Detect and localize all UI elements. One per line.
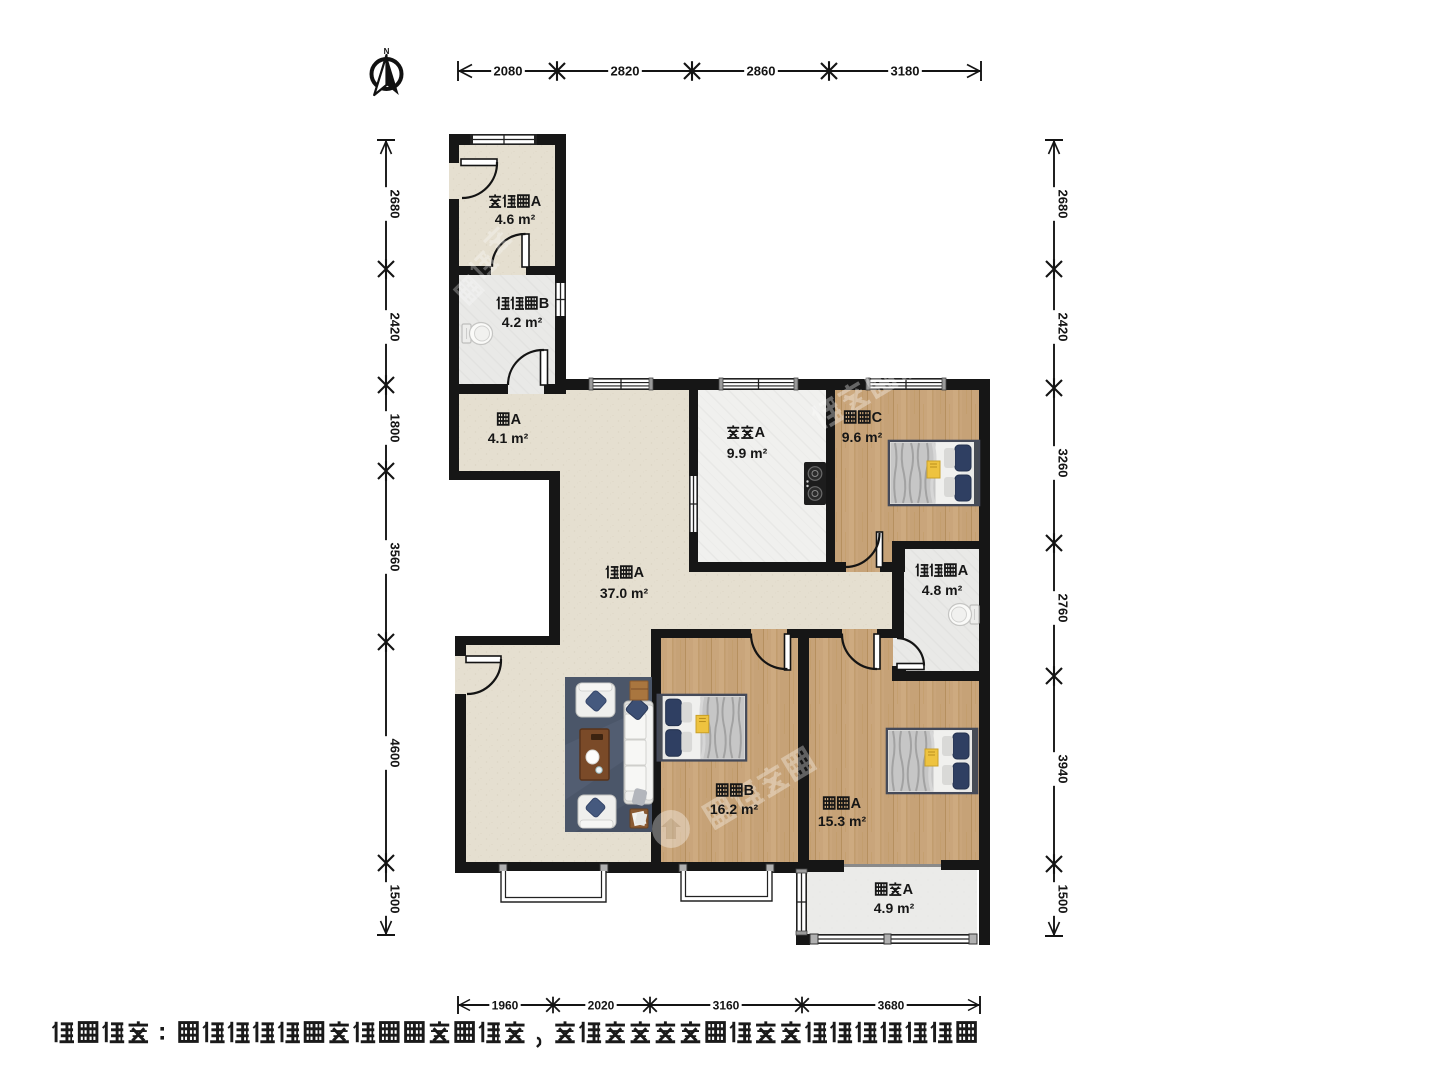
svg-text:1500: 1500 [1056, 885, 1071, 914]
svg-text:B: B [539, 296, 549, 312]
svg-text:3160: 3160 [713, 998, 740, 1012]
svg-text:15.3 m²: 15.3 m² [818, 813, 867, 829]
svg-text:3940: 3940 [1056, 755, 1071, 784]
svg-text:B: B [744, 783, 754, 799]
svg-text:16.2 m²: 16.2 m² [710, 801, 759, 817]
svg-text:1800: 1800 [388, 414, 403, 443]
svg-text:A: A [634, 565, 645, 581]
svg-text:2680: 2680 [1056, 190, 1071, 219]
svg-text:C: C [872, 410, 883, 426]
svg-text:4.6 m²: 4.6 m² [495, 211, 536, 227]
svg-text:A: A [755, 425, 766, 441]
svg-text:9.6 m²: 9.6 m² [842, 429, 883, 445]
svg-text:A: A [903, 882, 914, 898]
svg-text:3260: 3260 [1056, 449, 1071, 478]
svg-text:37.0 m²: 37.0 m² [600, 585, 649, 601]
svg-text:4.2 m²: 4.2 m² [502, 314, 543, 330]
svg-text:9.9 m²: 9.9 m² [727, 445, 768, 461]
svg-text:A: A [511, 412, 522, 428]
svg-text:3560: 3560 [388, 543, 403, 572]
svg-text:A: A [958, 563, 969, 579]
svg-text:2680: 2680 [388, 190, 403, 219]
svg-text:4600: 4600 [388, 739, 403, 768]
svg-text:4.1 m²: 4.1 m² [488, 430, 529, 446]
svg-text:A: A [851, 796, 862, 812]
svg-text:2020: 2020 [588, 998, 615, 1012]
svg-text:2420: 2420 [388, 313, 403, 342]
svg-text:2080: 2080 [494, 64, 523, 79]
svg-text:4.8 m²: 4.8 m² [922, 582, 963, 598]
svg-text:2760: 2760 [1056, 594, 1071, 623]
svg-text:A: A [531, 194, 542, 210]
svg-text:3180: 3180 [891, 64, 920, 79]
svg-text:4.9 m²: 4.9 m² [874, 900, 915, 916]
svg-text:1500: 1500 [388, 885, 403, 914]
svg-text:2820: 2820 [611, 64, 640, 79]
svg-text:2420: 2420 [1056, 313, 1071, 342]
svg-text:3680: 3680 [878, 998, 905, 1012]
svg-text:1960: 1960 [492, 998, 519, 1012]
svg-text:2860: 2860 [747, 64, 776, 79]
